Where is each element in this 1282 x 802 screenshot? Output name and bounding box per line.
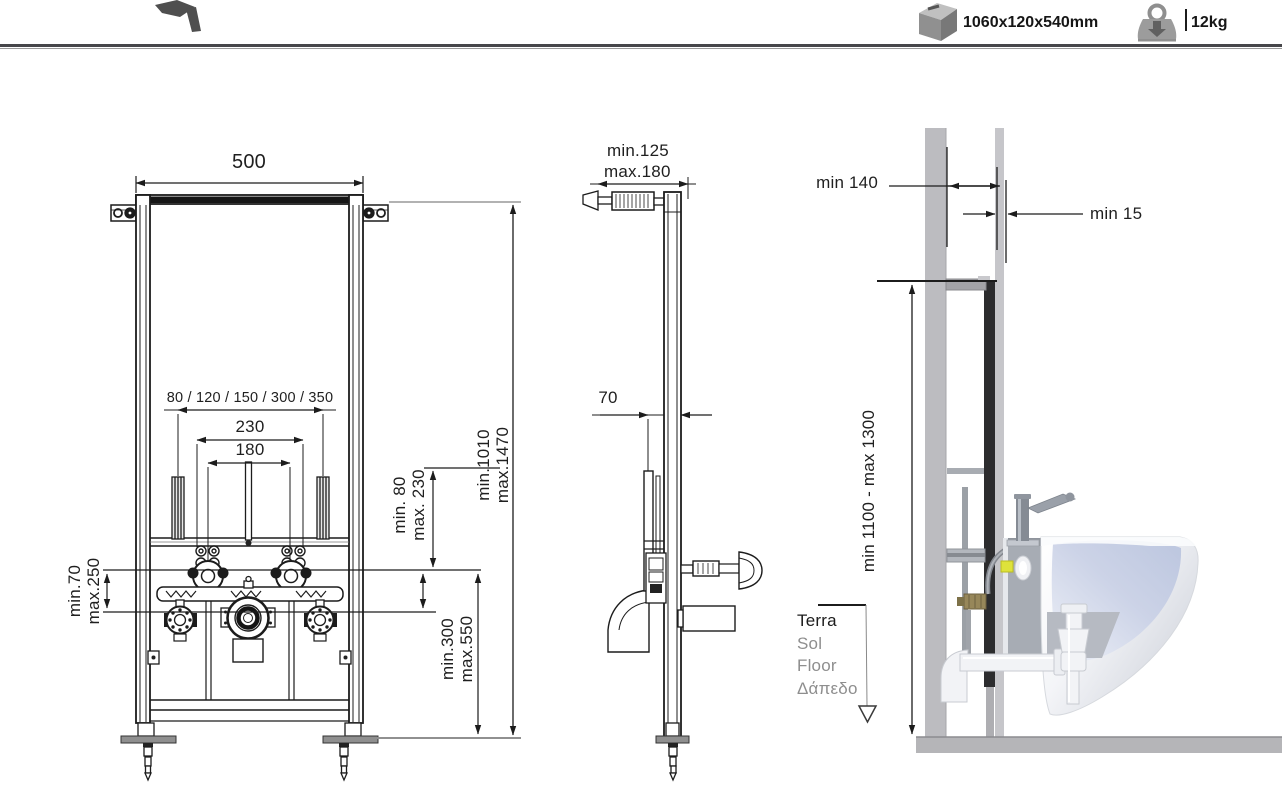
top-left-bracket (111, 205, 136, 221)
frame-height-min: min.1010 (474, 400, 493, 530)
side-dimensions (590, 177, 712, 471)
side-depth-min-label: min.125 (607, 141, 669, 161)
wall-anchor (583, 191, 664, 210)
weight-icon (1138, 6, 1177, 42)
drain-height-max: max.550 (457, 589, 476, 709)
mount-height-label: min 1100 - max 1300 (859, 386, 879, 596)
supply-height-label: min.70 max.250 (65, 536, 103, 646)
front-width-label: 500 (219, 151, 279, 175)
fixing-height-min: min. 80 (390, 450, 409, 560)
frame-height-max: max.1470 (493, 400, 512, 530)
shutoff-valve-3d (957, 594, 986, 609)
left-valve (164, 600, 197, 641)
floor-label-dapedo: Δάπεδο (797, 678, 858, 701)
supply-height-max: max.250 (84, 536, 103, 646)
package-box-icon (919, 3, 957, 41)
weight-tick-mark (1185, 9, 1187, 31)
frame-height-label: min.1010 max.1470 (474, 400, 514, 530)
profile-depth-label: 70 (592, 388, 624, 408)
right-anchor-bolt (339, 743, 349, 780)
weight-text: 12kg (1191, 13, 1227, 32)
package-size-text: 1060x120x540mm (963, 13, 1098, 32)
frame-rail-3d (984, 281, 995, 687)
top-right-bracket (363, 205, 388, 221)
structural-wall (925, 128, 946, 737)
floor-labels: Terra Sol Floor Δάπεδο (797, 610, 858, 700)
side-anchor-bolt (668, 743, 678, 780)
fixing-height-max: max. 230 (409, 450, 428, 560)
floor-slab (916, 737, 1282, 753)
side-drain-elbow (608, 590, 649, 652)
yellow-fitting (1001, 561, 1013, 572)
fixing-height-label: min. 80 max. 230 (390, 450, 428, 560)
header-divider-shadow (0, 48, 1282, 49)
side-view (583, 177, 762, 780)
bidet-3d (1041, 537, 1198, 715)
drain-height-label: min.300 max.550 (438, 589, 476, 709)
stud-spacing-options-label: 80 / 120 / 150 / 300 / 350 (160, 390, 340, 407)
floor-label-floor: Floor (797, 655, 858, 678)
wall-distance-label: min 140 (806, 173, 878, 193)
supply-height-min: min.70 (65, 536, 84, 646)
installation-3d-view (818, 128, 1282, 753)
floor-label-sol: Sol (797, 633, 858, 656)
side-depth-max-label: max.180 (604, 162, 671, 182)
panel-thickness-label: min 15 (1090, 204, 1142, 224)
right-valve (304, 600, 337, 641)
mount-height-text: min 1100 - max 1300 (859, 386, 878, 596)
fixing-spacing-label: 180 (220, 440, 280, 460)
drain-height-min: min.300 (438, 589, 457, 709)
header-divider (0, 44, 1282, 47)
fixing-studs (172, 462, 329, 546)
spec-sheet-page: 1060x120x540mm 12kg 500 80 / 120 / 150 /… (0, 0, 1282, 802)
side-wall-stud (681, 552, 762, 589)
bolt-spacing-label: 230 (220, 417, 280, 437)
left-anchor-bolt (143, 743, 153, 780)
corner-partial-icon (155, 0, 201, 32)
drain-fitting (221, 598, 275, 663)
floor-label-terra: Terra (797, 610, 858, 633)
